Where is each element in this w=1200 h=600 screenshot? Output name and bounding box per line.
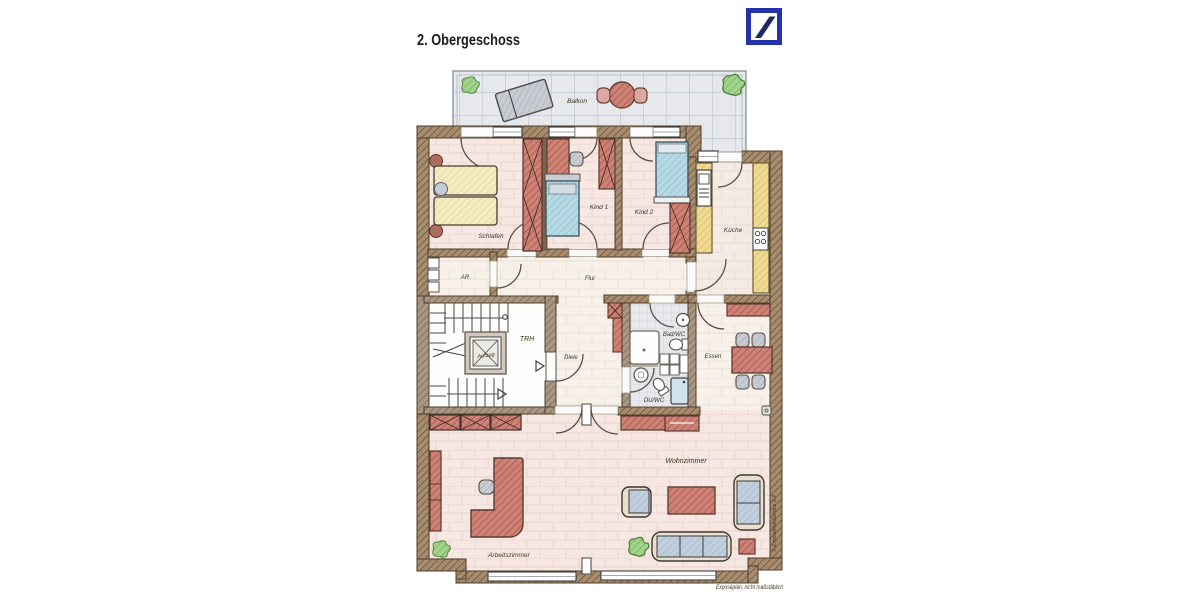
svg-text:Schlafen: Schlafen xyxy=(478,233,504,240)
svg-text:Arbeitszimmer: Arbeitszimmer xyxy=(487,552,530,559)
svg-text:TRH: TRH xyxy=(520,336,535,343)
svg-text:Kind 1: Kind 1 xyxy=(590,204,609,211)
svg-text:Exposéplan, nicht maßstäblich: Exposéplan, nicht maßstäblich xyxy=(716,584,783,591)
svg-text:Wohnzimmer: Wohnzimmer xyxy=(665,458,707,465)
svg-text:2. Obergeschoss: 2. Obergeschoss xyxy=(417,32,520,49)
svg-text:DU/WC: DU/WC xyxy=(644,398,665,404)
svg-text:Flur: Flur xyxy=(585,276,596,282)
svg-text:Balkon: Balkon xyxy=(567,98,587,105)
svg-text:© ExposePlanService 2.4: © ExposePlanService 2.4 xyxy=(771,495,778,552)
svg-text:AR: AR xyxy=(460,275,470,281)
svg-text:Diele: Diele xyxy=(564,355,578,361)
svg-text:Bad/WC: Bad/WC xyxy=(663,332,686,338)
svg-text:Küche: Küche xyxy=(724,227,743,234)
svg-text:Kind 2: Kind 2 xyxy=(635,209,654,216)
svg-text:Essen: Essen xyxy=(705,354,722,360)
